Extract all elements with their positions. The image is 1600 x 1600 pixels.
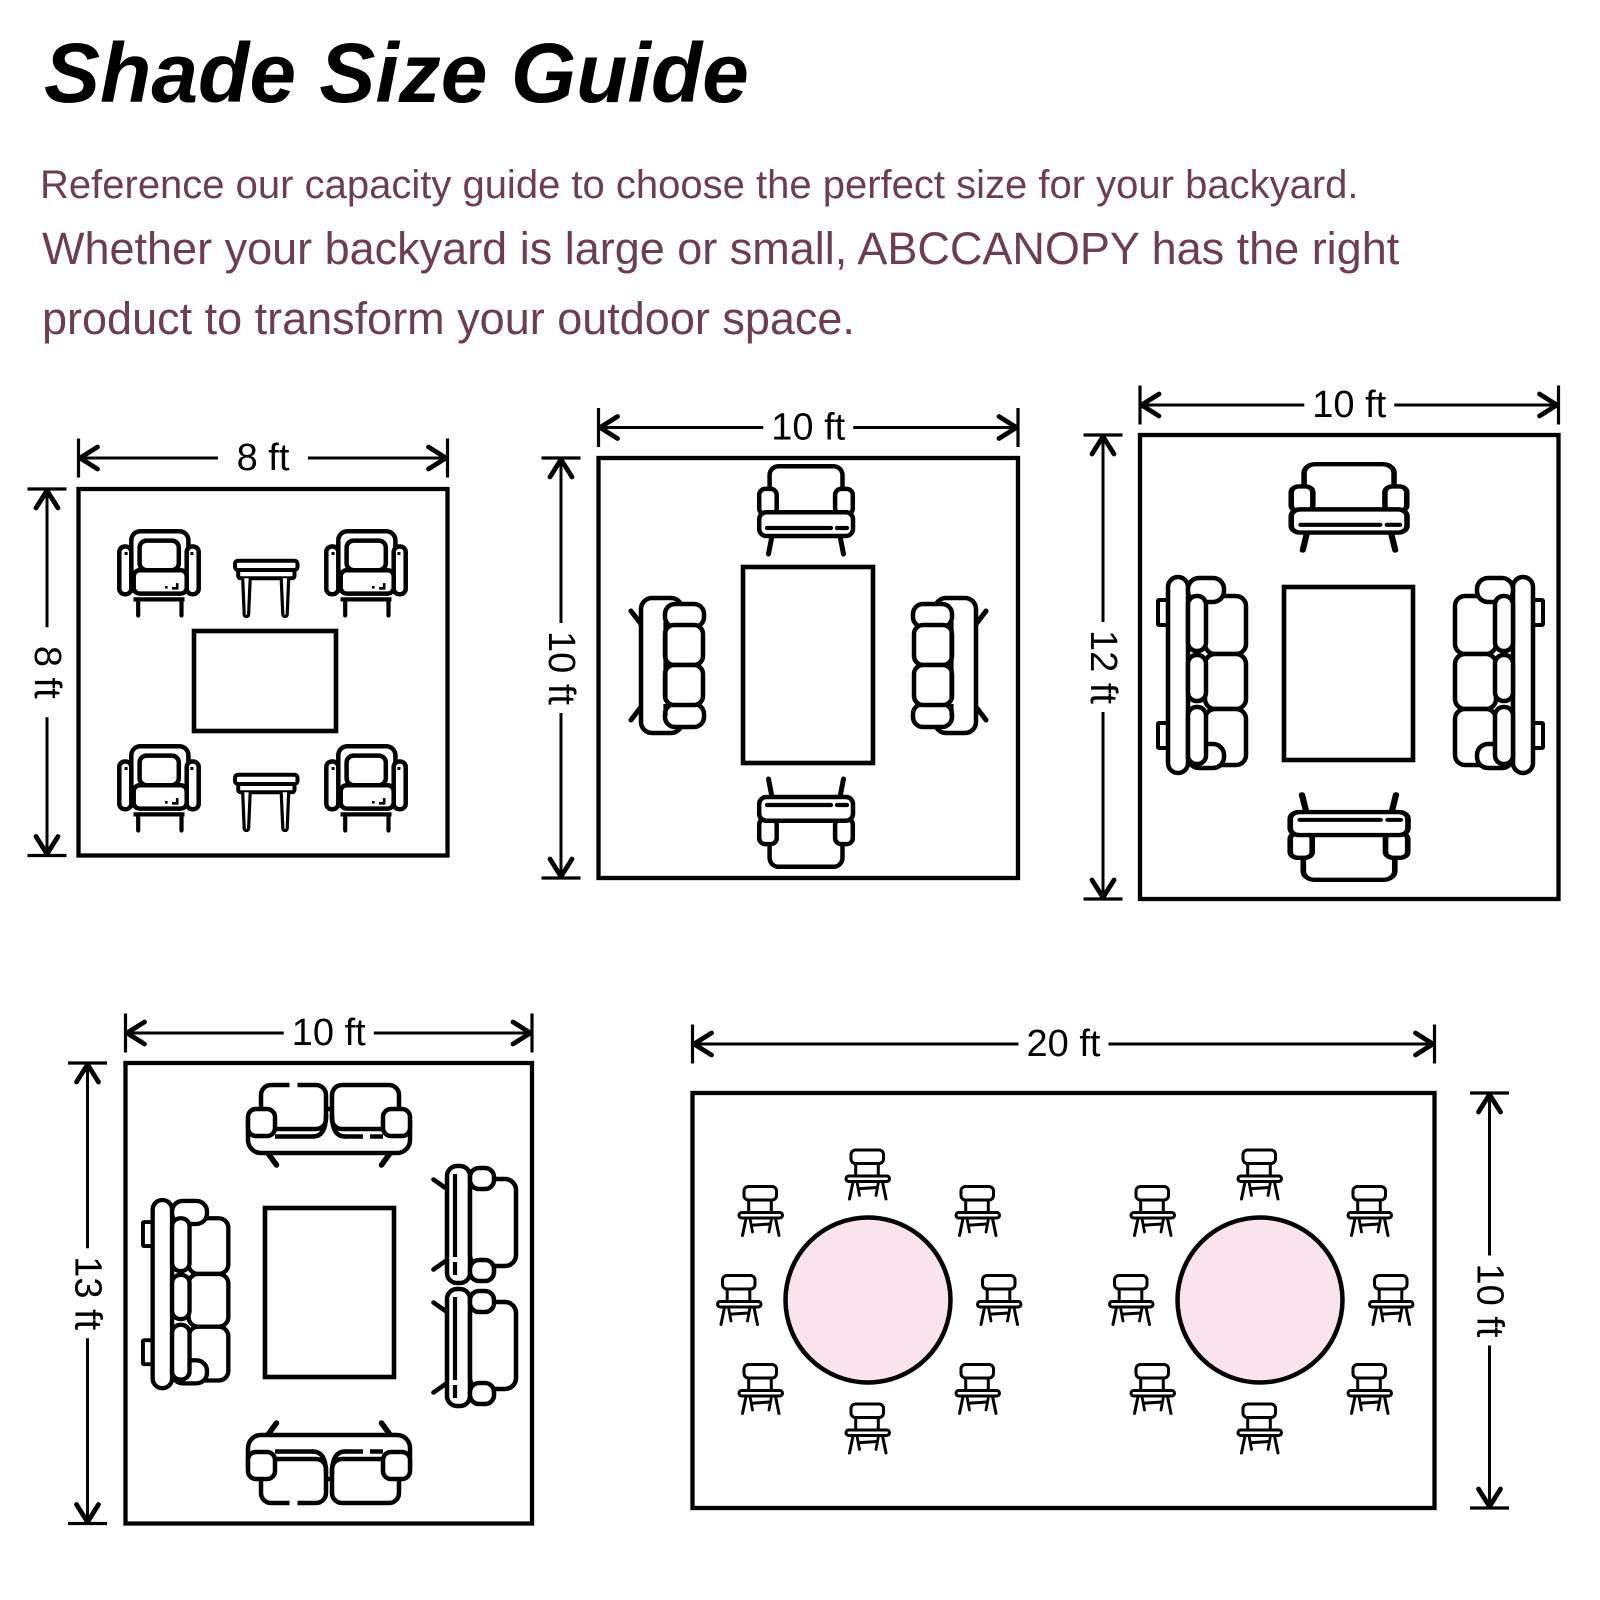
svg-text:8 ft: 8 ft (26, 646, 68, 699)
svg-text:8 ft: 8 ft (237, 437, 290, 479)
svg-text:20 ft: 20 ft (1027, 1023, 1101, 1065)
svg-text:12 ft: 12 ft (1082, 630, 1124, 704)
svg-text:13 ft: 13 ft (67, 1256, 109, 1330)
svg-text:10 ft: 10 ft (540, 631, 582, 705)
svg-text:10 ft: 10 ft (771, 407, 845, 449)
svg-text:10 ft: 10 ft (1312, 384, 1386, 426)
svg-text:10 ft: 10 ft (1469, 1264, 1511, 1338)
svg-text:10 ft: 10 ft (292, 1012, 366, 1054)
